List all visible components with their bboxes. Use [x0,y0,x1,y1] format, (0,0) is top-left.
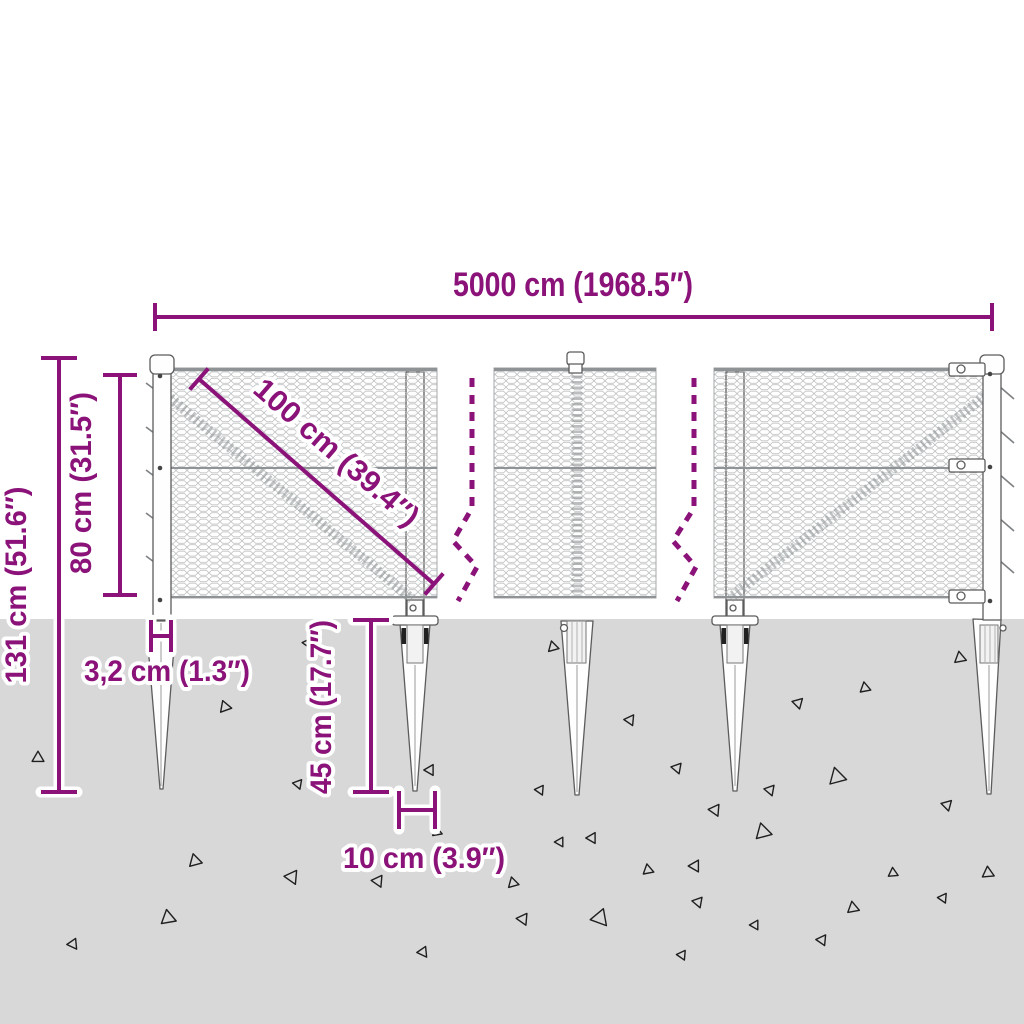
dim-line-mesh-height [103,375,137,595]
post-bolt [988,599,993,604]
fence-dimension-diagram: 5000 cm (1968.5″) 131 cm (51.6″) 80 cm (… [0,0,1024,1024]
spike-slot [402,628,407,644]
mesh-bracket [949,590,985,603]
dim-label-mesh-height: 80 cm (31.5″) [65,392,98,574]
mesh-bracket [949,363,985,376]
post-bolt [988,465,993,470]
dim-line-total-width [155,303,992,331]
break-line-right [673,378,696,601]
mesh-panel-3 [714,368,1014,598]
post-bolt [988,372,993,377]
diagram-canvas: 5000 cm (1968.5″) 131 cm (51.6″) 80 cm (… [0,0,1024,1024]
dim-label-spike-depth: 45 cm (17.7″) [305,620,338,794]
mesh-bracket [949,459,985,472]
break-line-left [453,378,477,601]
dim-label-total-height: 131 cm (51.6″) [0,487,33,684]
fence-post-3-cap [567,352,584,373]
post-bolt [158,466,163,471]
post-bolt [158,374,163,379]
fence-post-1 [150,355,174,620]
dim-label-total-width: 5000 cm (1968.5″) [453,266,693,304]
post-bolt [158,598,163,603]
dim-label-spike-width: 10 cm (3.9″) [343,842,505,875]
mesh-panel-2 [494,368,656,598]
dim-label-post-width: 3,2 cm (1.3″) [84,655,250,688]
spike-slot [424,628,429,644]
spike-slot [744,628,749,644]
spike-slot [722,628,727,644]
